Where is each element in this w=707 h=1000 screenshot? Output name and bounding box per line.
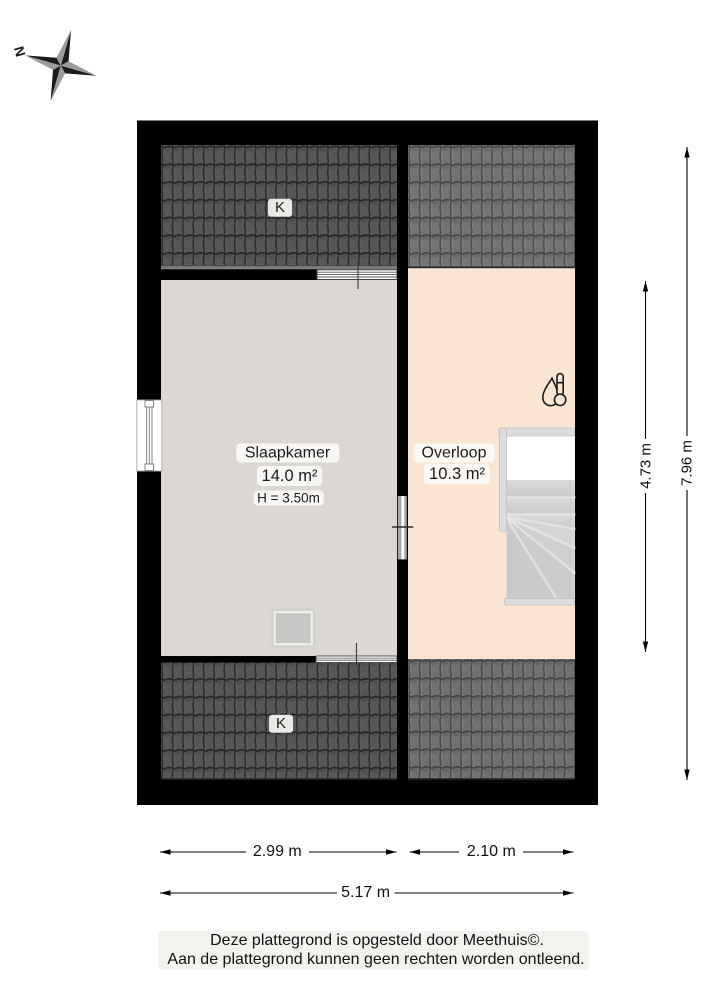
svg-text:N: N xyxy=(10,44,28,58)
